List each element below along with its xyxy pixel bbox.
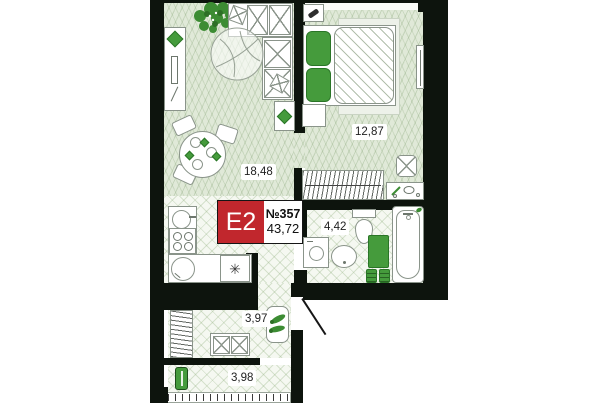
- bedroom-wardrobe: [302, 170, 384, 200]
- basket-icon: [379, 269, 390, 283]
- floorplan-canvas[interactable]: 18,48 12,87 4,42: [0, 0, 605, 403]
- kitchen-sink-icon: [172, 210, 191, 229]
- apartment-number-label: №357: [266, 208, 301, 222]
- entrance-door-leaf: [301, 298, 326, 335]
- hall-bench: [210, 333, 250, 356]
- tv-console: [164, 27, 186, 111]
- bathtub-inner: [396, 210, 420, 279]
- hallway-area-label: 3,97: [242, 311, 270, 327]
- bench-cushion: [213, 336, 230, 354]
- balcony-window-sill: [168, 392, 291, 403]
- shoes-icon: [267, 307, 288, 342]
- faucet-dot: [406, 215, 411, 220]
- sofa-cushion: [269, 5, 291, 35]
- stove-icon: [169, 228, 196, 254]
- toilet-tank: [352, 209, 376, 218]
- bed-blanket: [334, 27, 394, 104]
- slippers-box: [303, 4, 324, 22]
- bathtub-icon: [392, 206, 424, 283]
- wall-segment: [150, 358, 260, 365]
- vanity-items-icon: [387, 183, 423, 199]
- snowflake-glyph: ✳: [221, 261, 249, 278]
- wall-segment: [150, 0, 164, 403]
- bench-cushion: [231, 336, 248, 354]
- washer-door-icon: [309, 246, 324, 261]
- basket-icon: [366, 269, 377, 283]
- floor-bedroom-doorway: [294, 133, 305, 168]
- fridge-icon: ✳: [220, 255, 250, 282]
- bathroom-sink-icon: [331, 245, 357, 268]
- drain-dot: [343, 261, 346, 264]
- washer-panel-line: [307, 241, 313, 242]
- round-sink-icon: [171, 257, 195, 281]
- green-cushion-icon: [277, 109, 293, 125]
- radiator-icon: [416, 45, 424, 89]
- burner-icon: [173, 232, 182, 241]
- balcony-area-label: 3,98: [228, 370, 256, 386]
- burner-icon: [184, 232, 193, 241]
- wall-segment: [303, 283, 448, 300]
- burner-icon: [184, 242, 193, 251]
- slippers-icon: [308, 8, 320, 18]
- stool-icon: [396, 155, 417, 177]
- round-rug: [210, 27, 264, 81]
- vanity-table: [386, 182, 424, 200]
- wall-segment: [423, 0, 448, 300]
- wardrobe-rail-line: [305, 185, 381, 186]
- green-item-highlight: [181, 371, 183, 386]
- apartment-type-label: E2: [218, 201, 264, 243]
- wall-segment: [291, 283, 303, 297]
- wall-segment: [291, 330, 303, 403]
- side-table: [274, 101, 295, 131]
- washing-machine-icon: [303, 237, 329, 268]
- wall-segment: [294, 270, 307, 283]
- apartment-badge[interactable]: E2 №357 43,72: [217, 200, 303, 244]
- living-area-label: 18,48: [241, 164, 276, 180]
- bed-pillow-icon: [306, 31, 331, 66]
- bed-pillow-icon: [306, 68, 331, 102]
- tv-stand-line: [171, 87, 179, 102]
- nightstand: [302, 104, 326, 127]
- wall-segment: [418, 0, 448, 12]
- apartment-info: №357 43,72: [264, 201, 302, 243]
- hall-wardrobe: [170, 310, 193, 358]
- burner-icon: [173, 242, 182, 251]
- sink-handle-line: [174, 273, 180, 278]
- radiator-line: [420, 50, 421, 86]
- sofa-cushion: [264, 40, 291, 68]
- apartment-total-area-label: 43,72: [267, 222, 300, 236]
- bedroom-area-label: 12,87: [352, 124, 387, 140]
- faucet-icon: [189, 216, 196, 218]
- green-item-icon: [175, 367, 188, 390]
- wall-segment: [150, 387, 168, 403]
- green-cushion-icon: [167, 31, 184, 48]
- plate-icon: [192, 159, 203, 170]
- wall-segment: [150, 283, 258, 310]
- bath-mat-icon: [368, 235, 389, 268]
- tv-icon: [171, 56, 178, 84]
- bathroom-area-label: 4,42: [321, 219, 349, 235]
